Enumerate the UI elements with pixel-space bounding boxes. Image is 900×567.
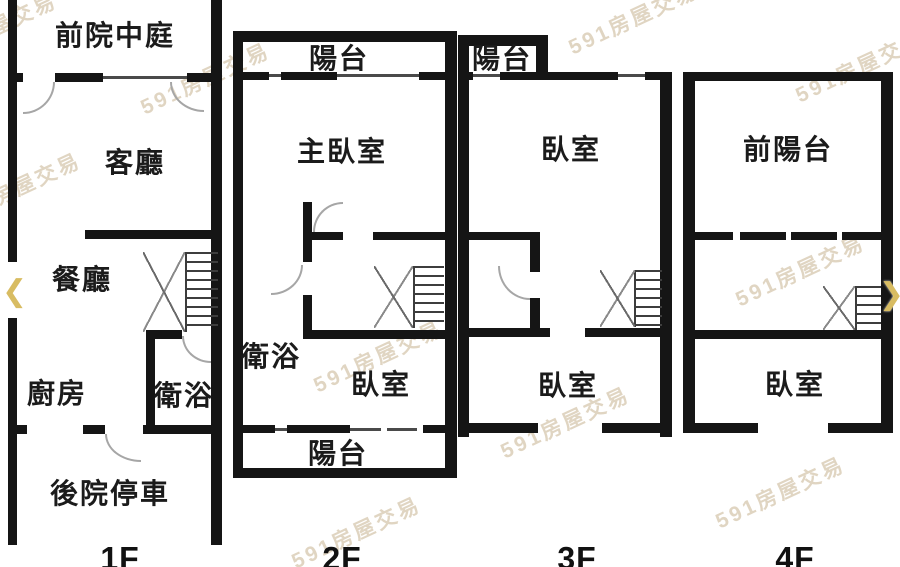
stairs [823, 286, 881, 330]
wall-segment [83, 425, 105, 434]
stair-hatch [600, 270, 635, 327]
room-label-dining-room: 餐廳 [52, 258, 112, 298]
stair-hatch [374, 266, 413, 328]
room-label-bedroom-front-3f: 臥室 [541, 128, 601, 168]
door-arc [271, 265, 303, 295]
window-line [275, 428, 287, 431]
stair-treads [634, 270, 662, 327]
wall-segment [303, 202, 312, 262]
room-label-front-courtyard: 前院中庭 [55, 14, 175, 54]
wall-segment [660, 75, 672, 437]
room-label-bathroom-2f: 衛浴 [241, 335, 301, 375]
window-line [269, 74, 281, 77]
wall-segment [303, 330, 455, 339]
floor-label-2f: 2F [322, 541, 361, 567]
wall-segment [683, 72, 695, 433]
wall-segment [233, 31, 243, 478]
carousel-next-icon[interactable]: ❯ [879, 280, 900, 310]
wall-segment [445, 31, 457, 478]
wall-segment [373, 232, 445, 240]
wall-segment [740, 232, 786, 240]
wall-segment [645, 72, 672, 80]
wall-segment [683, 330, 893, 339]
stairs [143, 252, 218, 332]
room-label-bedroom-back-3f: 臥室 [538, 364, 598, 404]
door-arc [498, 266, 530, 300]
wall-segment [55, 73, 103, 82]
floor-plan-image: 591房屋交易 591房屋交易 591房屋交易 591房屋交易 591房屋交易 … [0, 0, 900, 567]
wall-segment [187, 73, 211, 82]
stair-treads [413, 266, 444, 328]
floor-label-1f: 1F [100, 541, 139, 567]
wall-segment [458, 232, 530, 240]
wall-segment [8, 73, 23, 82]
door-arc [170, 82, 204, 112]
stair-hatch [823, 286, 855, 330]
wall-segment [683, 423, 758, 433]
stair-treads [185, 252, 219, 332]
watermark: 591房屋交易 [710, 449, 850, 535]
wall-segment [143, 425, 211, 434]
wall-segment [243, 72, 269, 80]
wall-segment [530, 232, 540, 272]
wall-segment [602, 423, 672, 433]
wall-segment [85, 230, 211, 239]
door-arc [313, 202, 343, 232]
wall-segment [791, 232, 837, 240]
wall-segment [8, 0, 17, 262]
floor-label-3f: 3F [557, 541, 596, 567]
wall-segment [8, 425, 27, 434]
stair-hatch [143, 252, 185, 332]
room-label-kitchen: 廚房 [27, 372, 87, 412]
room-label-balcony-3f: 陽台 [472, 37, 532, 77]
stairs [374, 266, 444, 328]
room-label-backyard-parking: 後院停車 [50, 472, 170, 512]
door-arc [105, 434, 141, 462]
wall-segment [530, 298, 540, 332]
wall-segment [419, 72, 445, 80]
room-label-balcony-front-2f: 陽台 [309, 37, 369, 77]
room-label-balcony-back-2f: 陽台 [308, 432, 368, 472]
door-arc [23, 82, 55, 114]
window-line [387, 428, 417, 431]
window-line [103, 76, 187, 79]
carousel-prev-icon[interactable]: ❮ [2, 277, 27, 307]
wall-segment [683, 232, 733, 240]
window-line [350, 428, 381, 431]
wall-segment [458, 72, 473, 80]
room-label-bathroom-1f: 衛浴 [154, 374, 214, 414]
wall-segment [585, 328, 672, 337]
room-label-living-room: 客廳 [105, 141, 165, 181]
stair-treads [855, 286, 881, 330]
wall-segment [536, 35, 548, 75]
stairs [600, 270, 662, 327]
wall-segment [881, 72, 893, 433]
wall-segment [828, 423, 893, 433]
wall-segment [423, 425, 445, 433]
door-arc [182, 336, 211, 363]
watermark: 591房屋交易 [563, 0, 703, 61]
wall-segment [312, 232, 343, 240]
wall-segment [243, 425, 275, 433]
room-label-master-bedroom: 主臥室 [297, 130, 387, 170]
room-label-front-balcony-4f: 前陽台 [743, 128, 833, 168]
wall-segment [842, 232, 893, 240]
room-label-bedroom-2f: 臥室 [351, 363, 411, 403]
window-line [618, 74, 645, 77]
floor-label-4f: 4F [775, 541, 814, 567]
wall-segment [458, 328, 550, 337]
wall-segment [683, 72, 893, 81]
room-label-bedroom-4f: 臥室 [765, 363, 825, 403]
wall-segment [458, 423, 538, 433]
